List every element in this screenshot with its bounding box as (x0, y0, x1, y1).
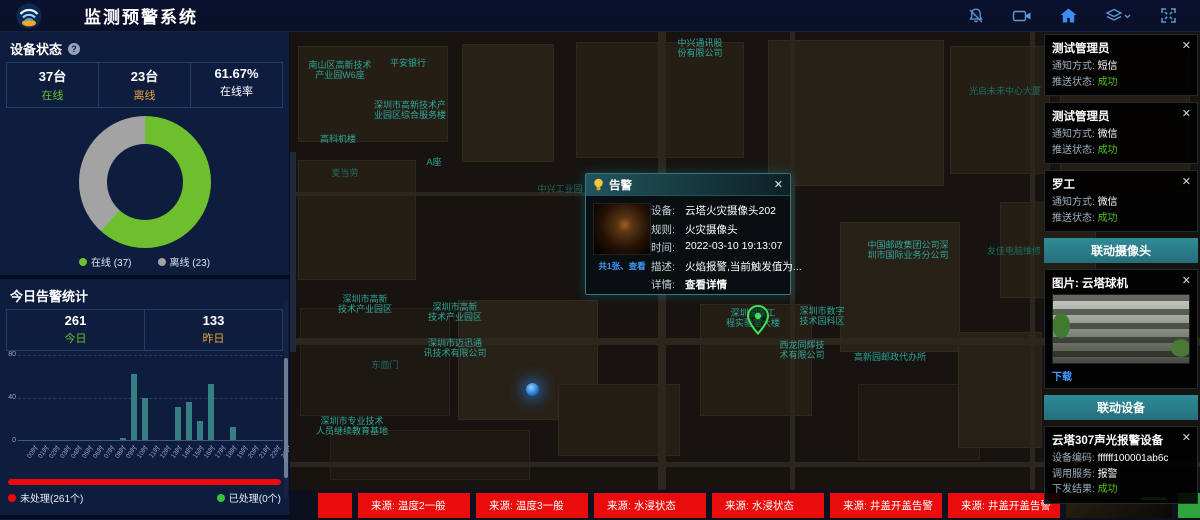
donut-legend: 在线 (37) 离线 (23) (0, 254, 289, 269)
alert-popup: 告警 ✕ 共1张、查看 设备:云塔火灾摄像头202 规则:火灾摄像头 时间:20… (585, 173, 791, 295)
alert-row-rule: 规则:火灾摄像头 (651, 222, 802, 237)
panel-scrollbar[interactable] (284, 300, 288, 500)
notification-title: 罗工 (1052, 176, 1190, 192)
bar-column-10时 (128, 355, 139, 440)
bar-column-15时 (184, 355, 195, 440)
ytick-80: 80 (4, 351, 16, 358)
stat-yesterday: 133 昨日 (145, 310, 282, 350)
alert-thumb-column: 共1张、查看 (593, 203, 651, 296)
map-place-label: 中兴工业园 (537, 184, 582, 194)
alert-source-text: 来源: 温度2一般 (358, 498, 446, 513)
alert-row-time: 时间:2022-03-10 19:13:07 (651, 240, 802, 255)
help-icon[interactable]: ? (68, 43, 80, 55)
close-icon[interactable]: ✕ (1182, 39, 1191, 52)
hourly-alert-chart: 80 40 0 00时01时02时03时04时05时06时07时08时09时10… (18, 355, 283, 465)
left-stats-panel: 设备状态 ? 37台 在线 23台 离线 61.67% 在线率 在线 (37) … (0, 32, 290, 520)
view-detail-link[interactable]: 查看详情 (685, 277, 727, 292)
bar-column-22时 (261, 355, 272, 440)
alert-row-detail: 详情:查看详情 (651, 277, 802, 292)
alert-row-desc: 描述:火焰报警,当前触发值为... (651, 259, 802, 274)
alert-source-text: 来源: 井盖开盖告警 (948, 498, 1051, 513)
bar-column-00时 (18, 355, 29, 440)
x-tick: 23时 (272, 441, 283, 465)
stat-offline: 23台 离线 (99, 63, 191, 107)
linked-device-card: 云塔307声光报警设备✕设备编码: ffffff100001ab6c调用服务: … (1044, 426, 1198, 504)
x-tick: 18时 (217, 441, 228, 465)
close-icon[interactable]: ✕ (1182, 431, 1191, 444)
notification-title: 测试管理员 (1052, 40, 1190, 56)
alert-detail-rows: 设备:云塔火灾摄像头202 规则:火灾摄像头 时间:2022-03-10 19:… (651, 203, 802, 296)
map-place-label: 友佳电脑维修 (987, 246, 1041, 256)
bar-column-08时 (106, 355, 117, 440)
layers-icon[interactable] (1104, 7, 1132, 25)
map-place-label: 高科机楼 (320, 134, 356, 144)
alert-source-tile[interactable]: 来源: 水浸状态 (712, 493, 824, 518)
notification-title: 测试管理员 (1052, 108, 1190, 124)
hourly-chart-plot: 80 40 0 (18, 355, 283, 441)
bar-column-07时 (95, 355, 106, 440)
close-icon[interactable]: ✕ (1182, 274, 1191, 287)
device-row: 调用服务: 报警 (1052, 467, 1190, 483)
device-row: 设备编码: ffffff100001ab6c (1052, 451, 1190, 467)
x-tick: 07时 (95, 441, 106, 465)
alert-popup-header: 告警 ✕ (586, 174, 790, 196)
x-tick: 19时 (228, 441, 239, 465)
notification-card: 测试管理员✕通知方式: 短信推送状态: 成功 (1044, 34, 1198, 96)
x-tick: 05时 (73, 441, 84, 465)
close-icon[interactable]: ✕ (774, 178, 783, 191)
map-place-label: 平安银行 (390, 58, 426, 68)
x-tick: 17时 (206, 441, 217, 465)
x-tick: 16时 (195, 441, 206, 465)
today-count: 261 (7, 313, 144, 328)
camera-card-title: 图片: 云塔球机 (1052, 275, 1190, 291)
yesterday-count: 133 (145, 313, 282, 328)
today-alerts-stats: 261 今日 133 昨日 (6, 309, 283, 351)
device-row: 下发结果: 成功 (1052, 482, 1190, 498)
alert-source-text: 来源: 温度3一般 (476, 498, 564, 513)
x-tick: 14时 (173, 441, 184, 465)
notification-row: 推送状态: 成功 (1052, 211, 1190, 227)
unhandled-legend: 未处理(261个) (8, 490, 83, 505)
thumb-caption-link[interactable]: 共1张、查看 (593, 260, 651, 272)
bar-column-05时 (73, 355, 84, 440)
x-tick: 10时 (128, 441, 139, 465)
alert-source-text: 来源: 井盖开盖告警 (830, 498, 933, 513)
bar-column-12时 (151, 355, 162, 440)
device-location-dot[interactable] (526, 383, 539, 396)
notification-row: 推送状态: 成功 (1052, 75, 1190, 91)
legend-offline: 离线 (23) (158, 254, 211, 269)
city-map[interactable]: 中兴通讯股 份有限公司南山区高新技术 产业园W6座平安银行深圳市高新技术产 业园… (290, 32, 1200, 520)
map-place-label: 高新园邮政代办所 (854, 352, 926, 362)
bar-column-20时 (239, 355, 250, 440)
bar-column-16时 (195, 355, 206, 440)
map-place-label: 光启未来中心大厦 (969, 86, 1041, 96)
mute-bell-icon[interactable] (966, 7, 986, 25)
x-tick: 09时 (117, 441, 128, 465)
bar-column-21时 (250, 355, 261, 440)
map-place-label: 南山区高新技术 产业园W6座 (308, 60, 371, 81)
x-tick: 04时 (62, 441, 73, 465)
right-panel: 测试管理员✕通知方式: 短信推送状态: 成功测试管理员✕通知方式: 微信推送状态… (1044, 34, 1198, 504)
bar-column-01时 (29, 355, 40, 440)
bar-column-09时 (117, 355, 128, 440)
map-place-label: 麦当劳 (331, 168, 358, 178)
ytick-40: 40 (4, 394, 16, 401)
alert-source-tile[interactable]: 来源: 水浸状态 (594, 493, 706, 518)
gray-dot-icon (158, 258, 166, 266)
x-tick: 03时 (51, 441, 62, 465)
close-icon[interactable]: ✕ (1182, 175, 1191, 188)
x-tick: 20时 (239, 441, 250, 465)
x-tick: 06时 (84, 441, 95, 465)
bar-column-17时 (206, 355, 217, 440)
device-status-title-text: 设备状态 (10, 39, 62, 58)
map-place-label: 中国邮政集团公司深 圳市国际业务分公司 (867, 240, 948, 261)
green-dot-icon (217, 494, 225, 502)
notification-card: 罗工✕通知方式: 微信推送状态: 成功 (1044, 170, 1198, 232)
red-dot-icon (8, 494, 16, 502)
fullscreen-icon[interactable] (1158, 7, 1178, 25)
alert-source-text: 来源: 水浸状态 (712, 498, 794, 513)
process-legend: 未处理(261个) 已处理(0个) (0, 485, 289, 505)
online-rate-label: 在线率 (191, 83, 282, 99)
green-dot-icon (79, 258, 87, 266)
yesterday-label: 昨日 (145, 330, 282, 346)
x-tick: 01时 (29, 441, 40, 465)
page-title: 监测预警系统 (84, 3, 198, 28)
x-tick: 00时 (18, 441, 29, 465)
bar-column-14时 (173, 355, 184, 440)
lamp-icon (593, 178, 604, 192)
scrollbar-thumb[interactable] (284, 358, 288, 478)
header-icon-group (966, 7, 1178, 25)
alert-source-tile[interactable]: 来源: 井盖开盖告警 (830, 493, 942, 518)
bar-column-13时 (162, 355, 173, 440)
device-status-title: 设备状态 ? (0, 32, 289, 62)
ytick-0: 0 (4, 437, 16, 444)
x-tick: 02时 (40, 441, 51, 465)
alert-popup-body: 共1张、查看 设备:云塔火灾摄像头202 规则:火灾摄像头 时间:2022-03… (586, 196, 790, 300)
notification-card: 测试管理员✕通知方式: 微信推送状态: 成功 (1044, 102, 1198, 164)
x-tick: 21时 (250, 441, 261, 465)
map-place-label: 深圳市迈迅通 讯技术有限公司 (423, 338, 486, 359)
today-label: 今日 (7, 330, 144, 346)
map-place-label: 深圳市高新技术产 业园区综合服务楼 (374, 100, 446, 121)
online-count: 37台 (7, 66, 98, 85)
alert-row-device: 设备:云塔火灾摄像头202 (651, 203, 802, 218)
video-camera-icon[interactable] (1012, 7, 1032, 25)
x-tick: 13时 (162, 441, 173, 465)
download-link[interactable]: 下载 (1052, 368, 1190, 383)
camera-card: 图片: 云塔球机 ✕ 下载 (1044, 269, 1198, 389)
map-place-label: 深圳市数字 技术园科区 (799, 306, 844, 327)
device-status-stats: 37台 在线 23台 离线 61.67% 在线率 (6, 62, 283, 108)
x-tick: 12时 (151, 441, 162, 465)
bar-column-19时 (228, 355, 239, 440)
linked-device-header: 联动设备 (1044, 395, 1198, 420)
map-place-label: 东面门 (371, 360, 398, 370)
alert-popup-title: 告警 (609, 177, 769, 193)
camera-snapshot-image[interactable] (1052, 294, 1190, 364)
handled-legend: 已处理(0个) (217, 490, 281, 505)
legend-online: 在线 (37) (79, 254, 132, 269)
notification-list: 测试管理员✕通知方式: 短信推送状态: 成功测试管理员✕通知方式: 微信推送状态… (1044, 34, 1198, 232)
notification-row: 推送状态: 成功 (1052, 143, 1190, 159)
app-logo-icon (16, 3, 42, 29)
close-icon[interactable]: ✕ (1182, 107, 1191, 120)
today-alerts-title: 今日告警统计 (0, 279, 289, 309)
bar-column-18时 (217, 355, 228, 440)
bar-column-04时 (62, 355, 73, 440)
bar-column-02时 (40, 355, 51, 440)
map-place-label: A座 (426, 157, 441, 167)
stat-today: 261 今日 (7, 310, 145, 350)
device-list: 云塔307声光报警设备✕设备编码: ffffff100001ab6c调用服务: … (1044, 426, 1198, 504)
today-alerts-title-text: 今日告警统计 (10, 286, 88, 305)
notification-row: 通知方式: 微信 (1052, 127, 1190, 143)
app-header: 监测预警系统 (0, 0, 1200, 32)
map-place-label: 深圳市高新 技术产业园区 (338, 294, 392, 315)
bar-column-06时 (84, 355, 95, 440)
hourly-chart-xlabels: 00时01时02时03时04时05时06时07时08时09时10时11时12时1… (18, 441, 283, 465)
alert-source-tile[interactable] (318, 493, 352, 518)
x-tick: 22时 (261, 441, 272, 465)
x-tick: 11时 (140, 441, 151, 465)
alert-source-text: 来源: 水浸状态 (594, 498, 676, 513)
bar-column-23时 (272, 355, 283, 440)
alert-location-pin[interactable] (745, 304, 771, 336)
bar-column-03时 (51, 355, 62, 440)
device-title: 云塔307声光报警设备 (1052, 432, 1190, 448)
linked-camera-header: 联动摄像头 (1044, 238, 1198, 263)
notification-row: 通知方式: 短信 (1052, 59, 1190, 75)
notification-row: 通知方式: 微信 (1052, 195, 1190, 211)
offline-count: 23台 (99, 66, 190, 85)
map-place-label: 西龙同辉技 术有限公司 (779, 340, 824, 361)
x-tick: 15时 (184, 441, 195, 465)
online-rate: 61.67% (191, 66, 282, 81)
offline-label: 离线 (99, 87, 190, 103)
device-status-donut (79, 116, 211, 248)
alert-source-tile[interactable]: 来源: 温度2一般 (358, 493, 470, 518)
stat-online-rate: 61.67% 在线率 (191, 63, 282, 107)
fire-snapshot-image[interactable] (593, 203, 651, 255)
online-label: 在线 (7, 87, 98, 103)
stat-online: 37台 在线 (7, 63, 99, 107)
map-place-label: 深圳市高新 技术产业园区 (428, 302, 482, 323)
map-place-label: 深圳市专业技术 人员继续教育基地 (316, 416, 388, 437)
chevron-down-icon (1125, 15, 1130, 18)
home-icon[interactable] (1058, 7, 1078, 25)
map-place-label: 中兴通讯股 份有限公司 (677, 38, 722, 59)
alert-source-tile[interactable]: 来源: 温度3一般 (476, 493, 588, 518)
x-tick: 08时 (106, 441, 117, 465)
bar-column-11时 (140, 355, 151, 440)
